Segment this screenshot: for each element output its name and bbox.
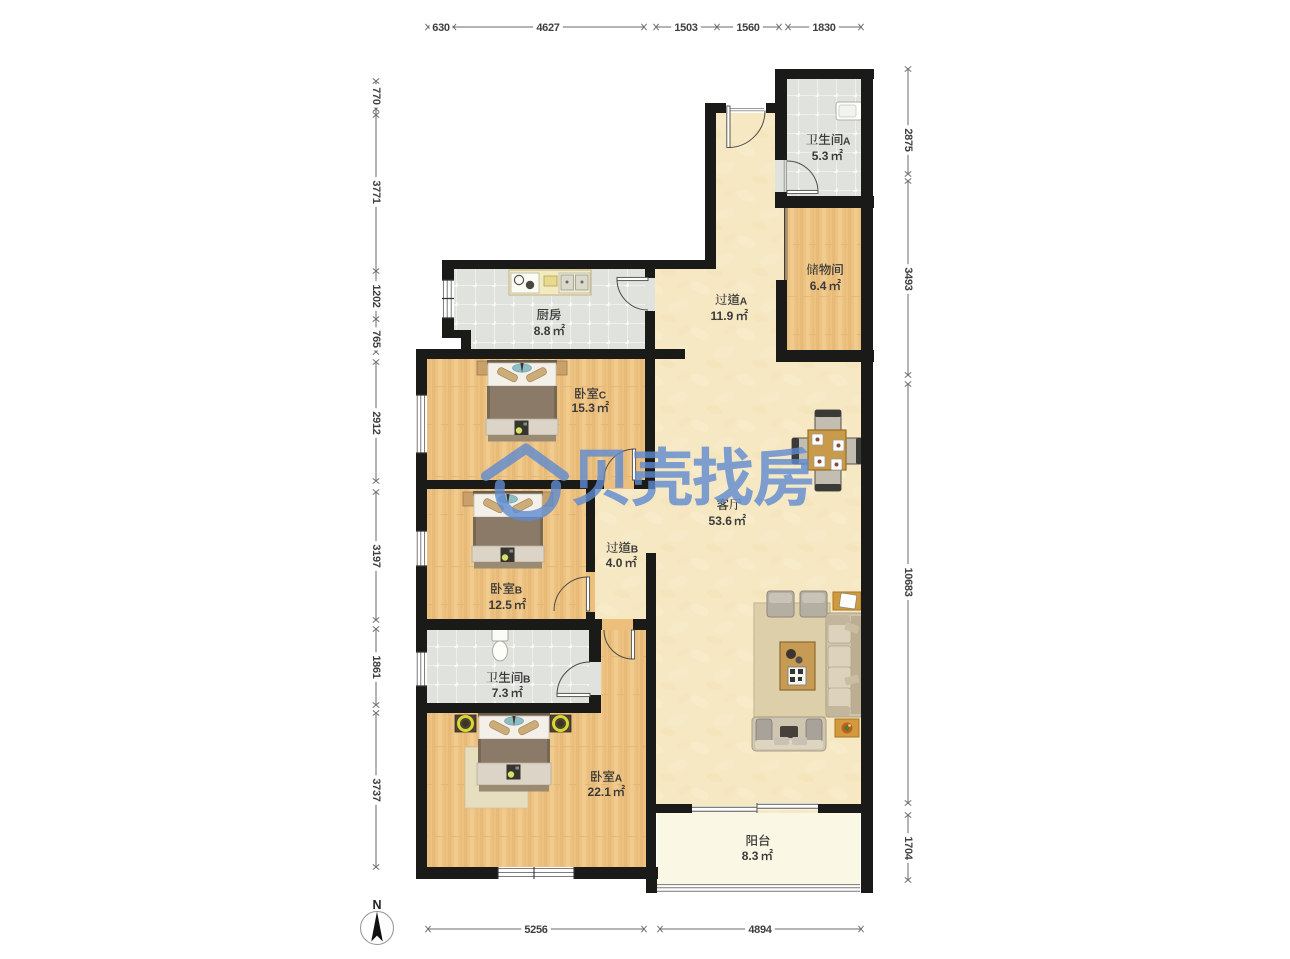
- svg-text:B: B: [523, 675, 530, 686]
- svg-text:3197: 3197: [370, 544, 382, 567]
- svg-text:15.3: 15.3: [572, 401, 596, 415]
- svg-text:1861: 1861: [370, 655, 382, 678]
- svg-text:1202: 1202: [370, 284, 382, 307]
- svg-text:B: B: [631, 545, 638, 556]
- svg-text:2875: 2875: [902, 128, 914, 151]
- svg-text:11.9: 11.9: [711, 309, 734, 323]
- svg-text:6.4: 6.4: [810, 279, 827, 293]
- svg-text:3493: 3493: [902, 267, 914, 290]
- svg-text:4894: 4894: [748, 924, 772, 936]
- svg-text:630: 630: [432, 22, 450, 34]
- svg-text:4.0: 4.0: [606, 556, 623, 570]
- svg-text:5256: 5256: [524, 924, 547, 936]
- svg-text:A: A: [740, 297, 748, 308]
- svg-text:1830: 1830: [812, 22, 835, 34]
- svg-text:10683: 10683: [902, 567, 914, 596]
- svg-text:5.3: 5.3: [812, 149, 829, 163]
- svg-text:4627: 4627: [536, 22, 559, 34]
- svg-text:8.8: 8.8: [534, 324, 551, 338]
- svg-text:2912: 2912: [370, 411, 382, 434]
- svg-text:A: A: [615, 774, 623, 785]
- svg-text:3737: 3737: [370, 778, 382, 801]
- svg-text:22.1: 22.1: [588, 785, 612, 799]
- svg-text:C: C: [599, 391, 607, 402]
- svg-text:1503: 1503: [674, 22, 697, 34]
- svg-text:770: 770: [370, 87, 382, 105]
- svg-text:N: N: [372, 898, 381, 912]
- svg-text:7.3: 7.3: [492, 686, 509, 700]
- svg-text:8.3: 8.3: [742, 849, 759, 863]
- svg-text:3771: 3771: [370, 180, 382, 203]
- svg-text:1704: 1704: [902, 836, 914, 860]
- svg-text:12.5: 12.5: [489, 598, 513, 612]
- svg-text:B: B: [515, 586, 522, 597]
- svg-text:1560: 1560: [736, 22, 759, 34]
- svg-text:53.6: 53.6: [709, 514, 733, 528]
- svg-text:A: A: [843, 137, 851, 148]
- svg-text:765: 765: [370, 330, 382, 348]
